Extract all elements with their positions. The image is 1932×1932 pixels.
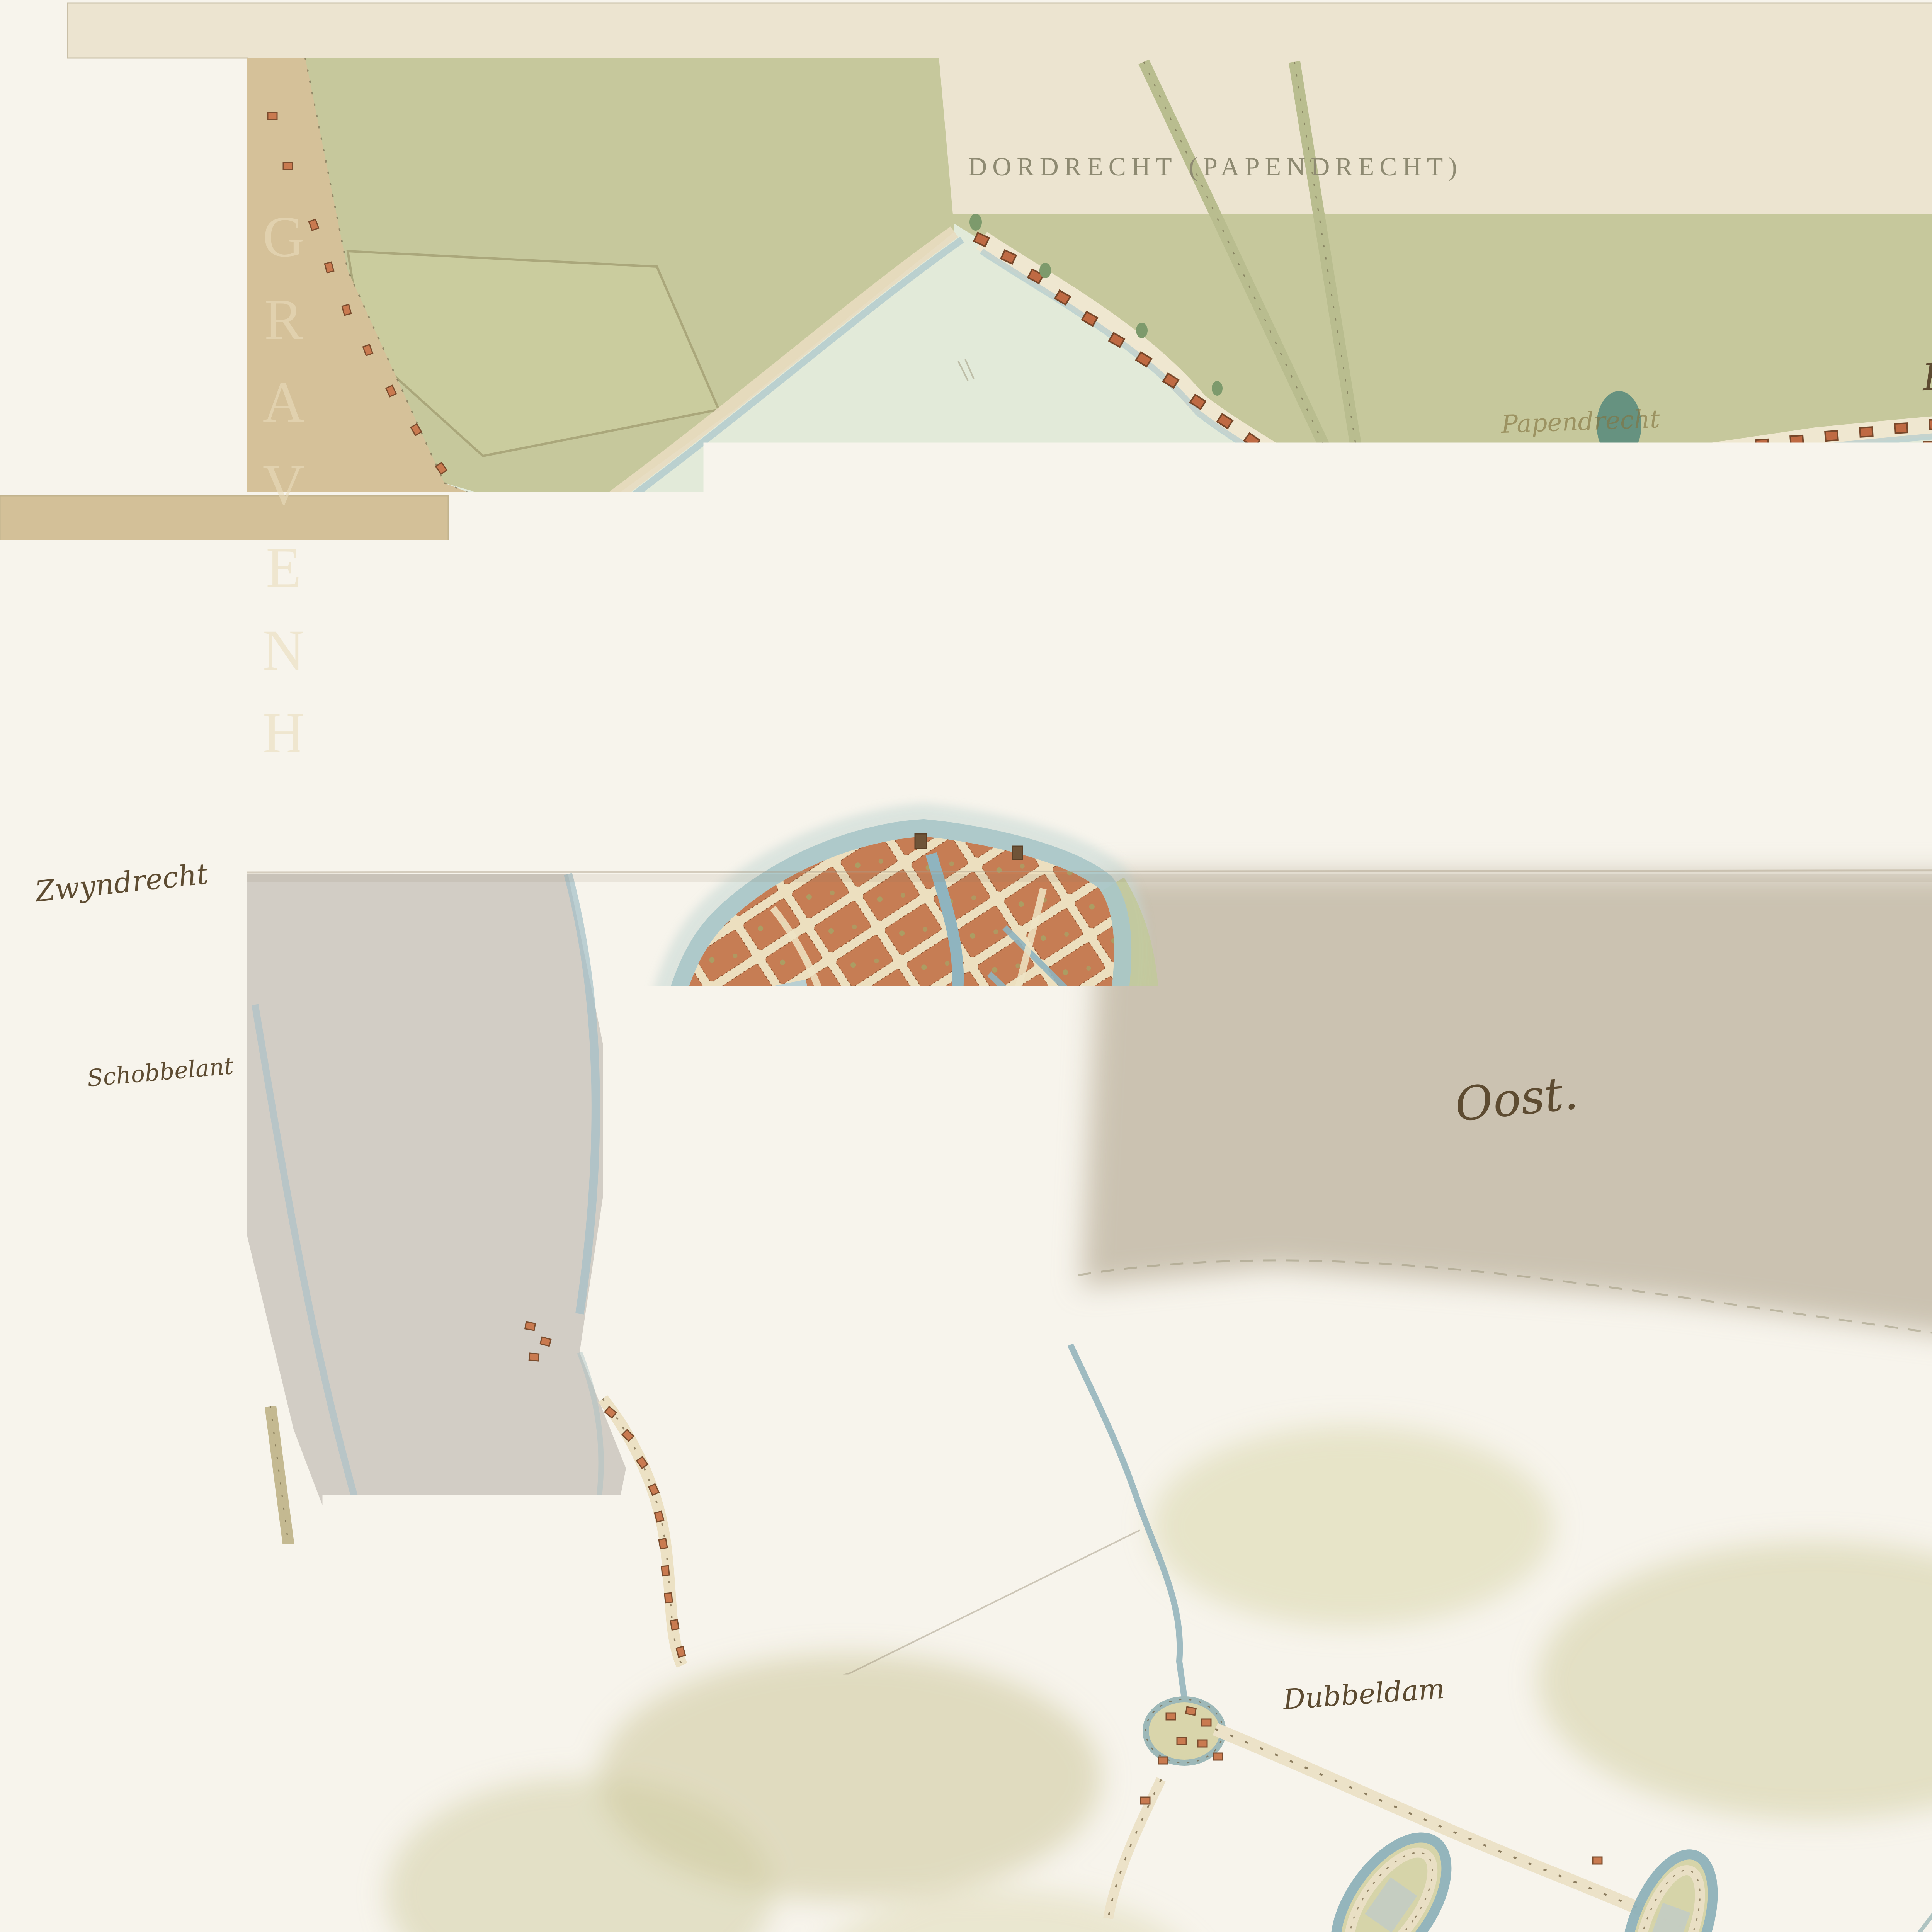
- facsimile-map-page: { "title": "DORDRECHT (PAPENDRECHT)", "l…: [0, 0, 1932, 1932]
- label-papendrecht-faint: Papendrecht: [1501, 405, 1660, 439]
- sheet-title-upper: [68, 3, 1932, 874]
- map-title: DORDRECHT (PAPENDRECHT): [900, 151, 1530, 182]
- sheet-watermark: GRAVENHA: [250, 205, 317, 881]
- village-dubbeldam: [1146, 1699, 1223, 1764]
